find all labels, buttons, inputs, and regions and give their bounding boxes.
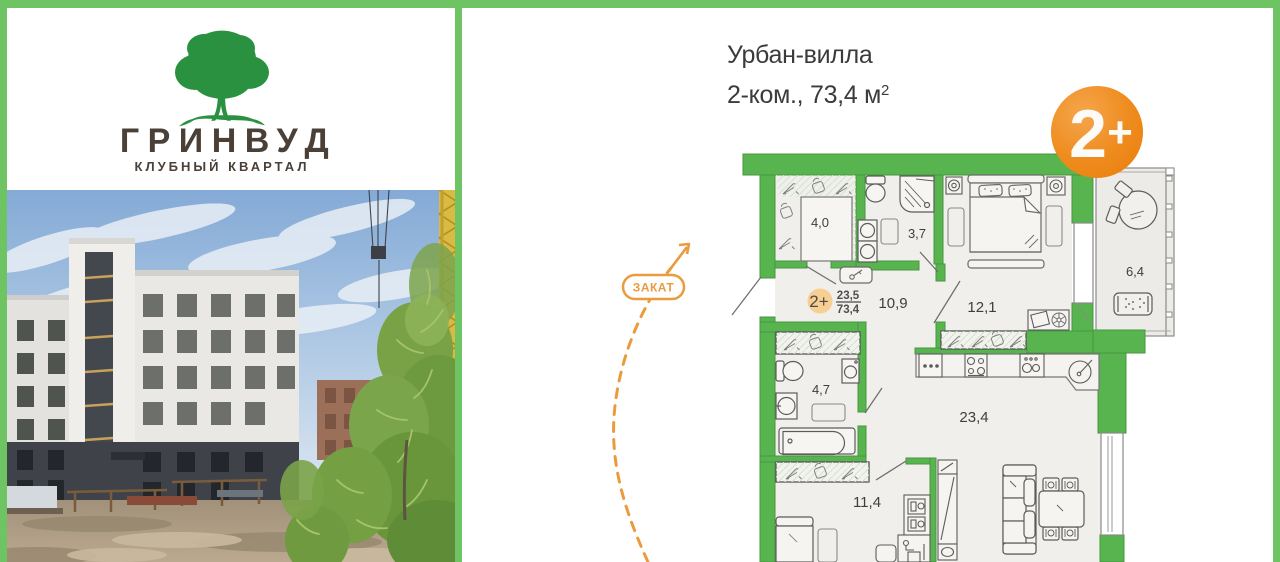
svg-text:6,4: 6,4 xyxy=(1126,264,1144,279)
svg-text:2: 2 xyxy=(1069,96,1107,172)
svg-text:73,4: 73,4 xyxy=(837,304,860,316)
svg-text:23,5: 23,5 xyxy=(837,290,860,302)
svg-text:11,4: 11,4 xyxy=(853,494,881,511)
svg-text:+: + xyxy=(1107,108,1133,157)
svg-text:12,1: 12,1 xyxy=(967,299,996,316)
svg-text:10,9: 10,9 xyxy=(878,295,907,312)
svg-text:23,4: 23,4 xyxy=(959,409,988,426)
svg-text:3,7: 3,7 xyxy=(908,226,926,241)
svg-text:4,0: 4,0 xyxy=(811,215,829,230)
svg-text:ЗАКАТ: ЗАКАТ xyxy=(633,281,675,295)
svg-text:4,7: 4,7 xyxy=(812,382,830,397)
svg-text:2+: 2+ xyxy=(809,292,828,311)
